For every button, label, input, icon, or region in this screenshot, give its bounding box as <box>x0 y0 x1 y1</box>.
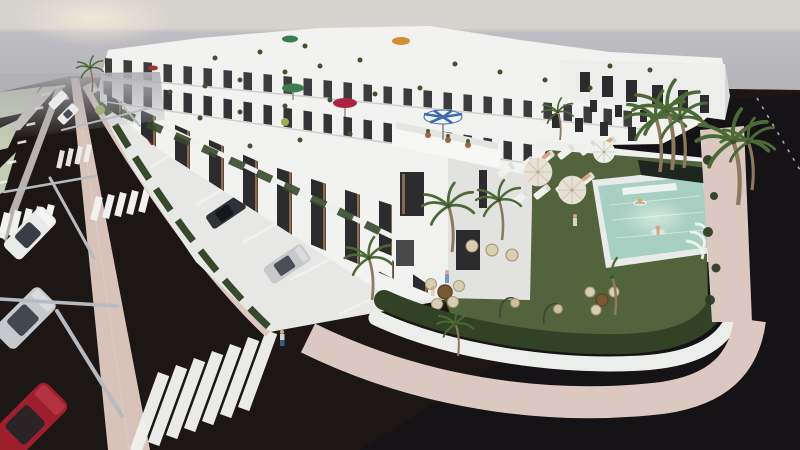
render-canvas <box>0 0 800 450</box>
person-walking-lawn <box>573 214 577 226</box>
corner-house-right-face <box>448 158 532 300</box>
architectural-rendering: Elevated aerial 3D architectural renderi… <box>0 0 800 450</box>
pedestrian <box>280 330 285 346</box>
person-standing <box>445 270 449 283</box>
parasol-green-small <box>282 36 298 43</box>
poolside-parasol-white <box>593 141 615 163</box>
red-awning <box>148 66 158 71</box>
poolside-parasol-cream <box>524 158 553 187</box>
parasol-orange <box>392 37 410 45</box>
poolside-parasol-cream <box>558 176 587 205</box>
person-seated <box>431 286 435 296</box>
